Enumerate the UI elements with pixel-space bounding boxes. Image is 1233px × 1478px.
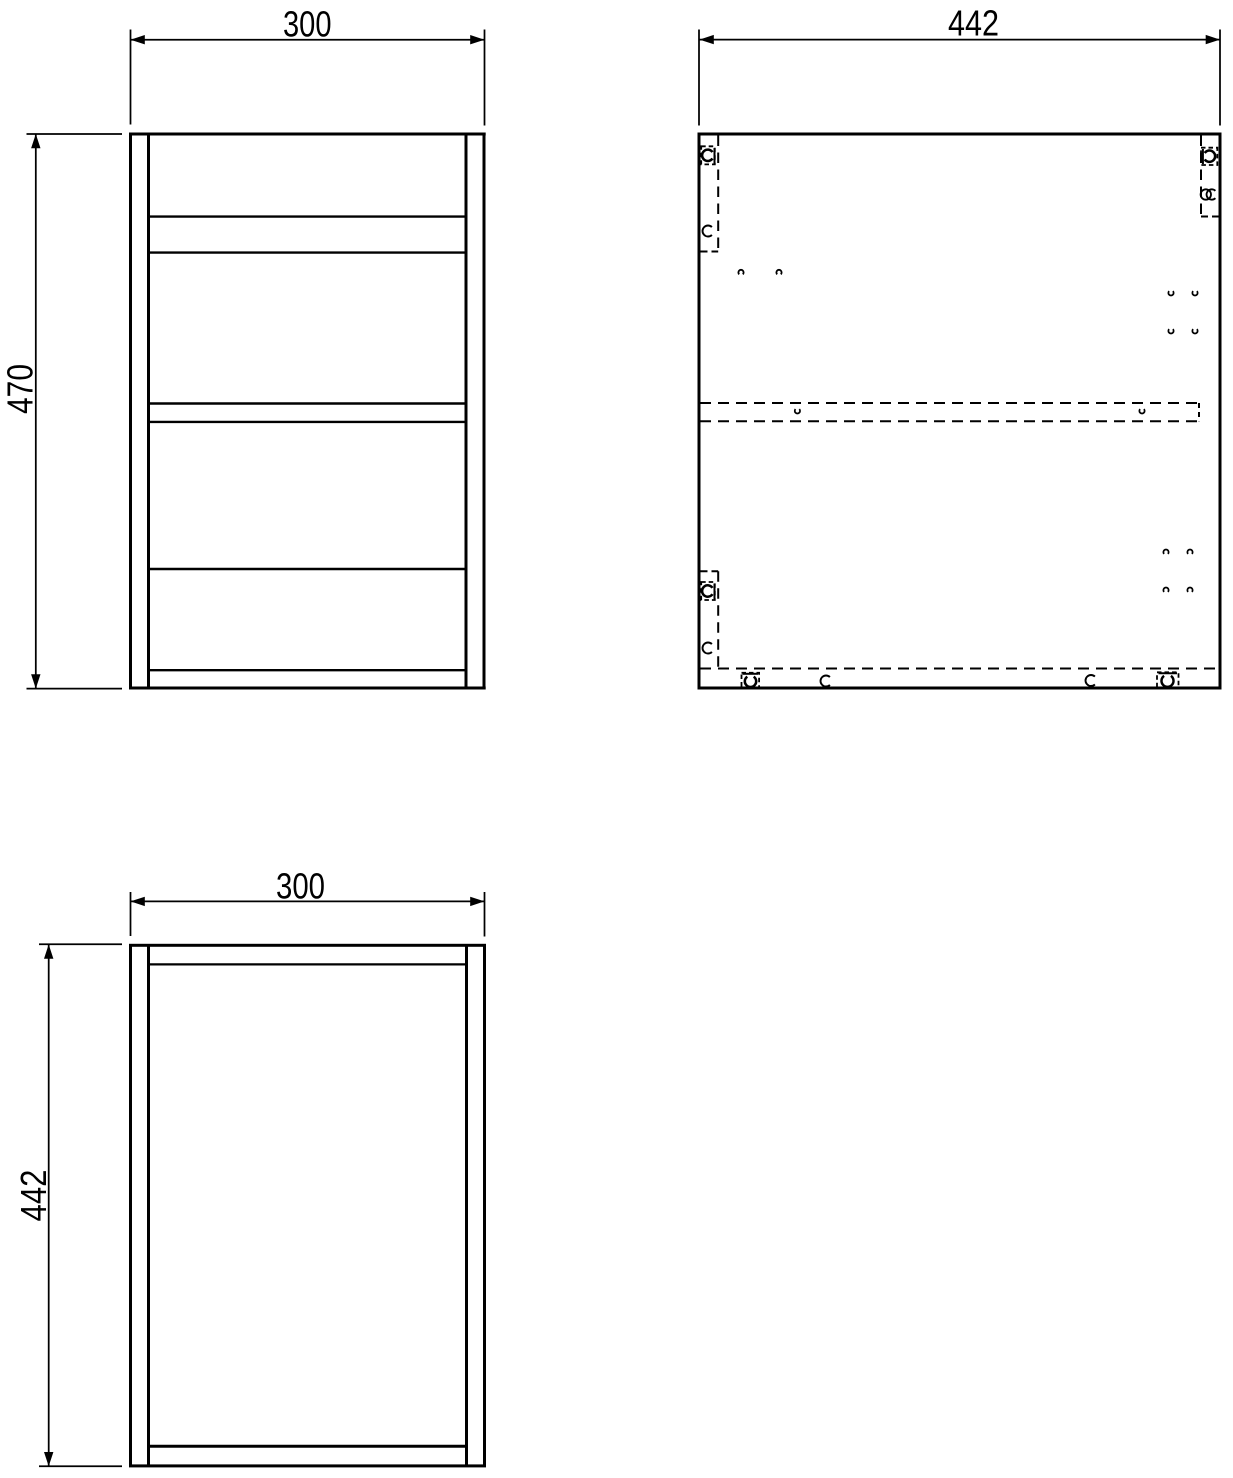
svg-text:442: 442 — [13, 1170, 54, 1222]
svg-text:470: 470 — [0, 364, 40, 414]
svg-text:442: 442 — [948, 3, 999, 44]
svg-text:300: 300 — [283, 3, 332, 44]
svg-text:300: 300 — [276, 865, 325, 906]
